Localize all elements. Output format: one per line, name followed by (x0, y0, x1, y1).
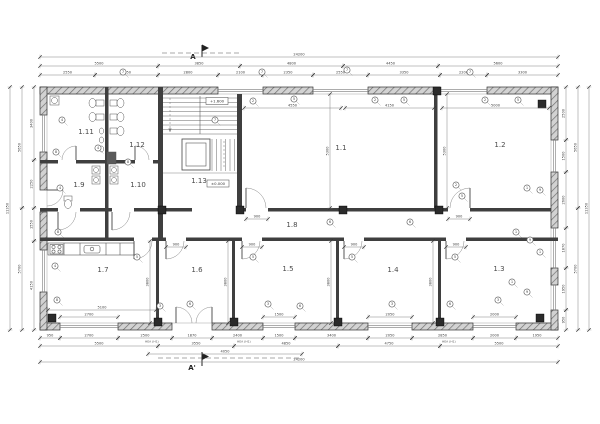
keynote-number: 5 (252, 255, 254, 259)
urinal (99, 128, 103, 134)
interior-walls (40, 87, 558, 323)
section-marker-top: A (162, 45, 242, 62)
toilet (89, 99, 96, 108)
keynote-number: 5 (517, 98, 519, 102)
dimension-text: 4150 (30, 281, 34, 290)
dimension-text: 2250 (30, 180, 34, 189)
keynote-leader (412, 224, 415, 227)
toilet (110, 128, 117, 134)
dimension-text: 3550 (192, 342, 201, 346)
keynote-leader (529, 190, 532, 193)
keynote-leader (64, 122, 67, 125)
toilet (117, 99, 124, 108)
keynote-number: 2 (455, 183, 457, 187)
keynote-number: 6 (409, 220, 411, 224)
dimension-text: 4450 (386, 62, 395, 66)
dimension-text: 5000 (491, 104, 500, 108)
room-label: 1.11 (78, 128, 94, 136)
dimension-text: 5650 (574, 143, 578, 152)
dimension-text: 3800 (146, 278, 150, 287)
keynote-number: 9 (539, 188, 541, 192)
dimension-text: 1550 (30, 220, 34, 229)
keynote-number: 7 (214, 118, 216, 122)
keynote-leader (264, 74, 267, 77)
dimension-text: 24200 (293, 53, 304, 57)
door-swing-arc (47, 190, 63, 206)
dimension-text: 2000 (490, 334, 499, 338)
dimension-text: 4050 (221, 350, 230, 354)
dimension-text: 1500 (275, 334, 284, 338)
room-label: 1.10 (130, 181, 146, 189)
door-swing-arc (62, 146, 76, 160)
dimension-subtext: HEA (H1) (145, 340, 159, 344)
dimension-text: 3300 (518, 71, 527, 75)
keynote-leader (520, 102, 523, 105)
dimension-text: 2800 (184, 71, 193, 75)
keynote-number: 1 (515, 230, 517, 234)
dimension-text: 4550 (288, 104, 297, 108)
keynote-number: 9 (529, 238, 531, 242)
sanitary-fixtures (50, 96, 124, 209)
keynote-leader (354, 259, 357, 262)
keynote-leader (192, 306, 195, 309)
keynote-number: 5 (461, 194, 463, 198)
keynote-number: 4 (54, 264, 56, 268)
dimension-text: 11350 (6, 203, 10, 214)
room-label: 1.12 (129, 141, 145, 149)
keynote-number: 8 (127, 160, 129, 164)
keynote-leader (529, 294, 532, 297)
dimension-text: 4150 (385, 104, 394, 108)
toilet (65, 200, 72, 209)
keynote-number: 7 (469, 70, 471, 74)
keynote-leader (472, 74, 475, 77)
dimension-text: 2850 (438, 334, 447, 338)
dimension-text: 11350 (585, 203, 589, 214)
keynote-number: 2 (374, 98, 376, 102)
keynote-number: 7 (122, 70, 124, 74)
dimension-text: 2000 (490, 313, 499, 317)
dimension-text: 2550 (336, 71, 345, 75)
dimension-text: 4850 (282, 342, 291, 346)
dimension-text: 1870 (188, 334, 197, 338)
dimension-text: 2500 (141, 334, 150, 338)
dimension-text: 5300 (326, 147, 330, 156)
keynote-number: 6 (329, 220, 331, 224)
level-value: ±0.000 (211, 181, 226, 186)
dimension-text: 2200 (459, 71, 468, 75)
dimension-text: 24200 (293, 358, 304, 362)
keynote-leader (58, 154, 61, 157)
keynote-number: 3 (267, 302, 269, 306)
dimension-text: 2700 (85, 313, 94, 317)
keynote-number: 1 (539, 250, 541, 254)
dimension-text: 3800 (327, 278, 331, 287)
keynote-leader (57, 268, 60, 271)
keynote-leader (270, 306, 273, 309)
keynote-leader (542, 254, 545, 257)
dimension-text: 900 (249, 243, 256, 247)
toilet (110, 114, 117, 120)
dimension-text: 4800 (287, 62, 296, 66)
toilet (96, 100, 104, 106)
keynote-leader (255, 103, 258, 106)
dimension-subtext: HEA (H1) (237, 340, 251, 344)
dimension-text: 2050 (386, 313, 395, 317)
door-swing-arc (58, 212, 76, 230)
urinal (99, 137, 103, 143)
door-swing-arc (246, 188, 266, 208)
dimension-text: 900 (173, 243, 180, 247)
keynote-leader (302, 308, 305, 311)
door-swing-arc (196, 307, 212, 323)
dimension-text: 900 (351, 243, 358, 247)
dimension-text: 900 (456, 215, 463, 219)
level-marker-ground: ±0.000 (207, 180, 229, 187)
dimension-text: 1870 (562, 244, 566, 253)
keynote-number: 5 (136, 255, 138, 259)
keynote-number: 8 (56, 298, 58, 302)
room-label: 1.6 (191, 266, 203, 274)
keynote-leader (514, 284, 517, 287)
dimension-text: 2700 (85, 334, 94, 338)
dimension-text: 5500 (495, 342, 504, 346)
keynote-number: 6 (449, 302, 451, 306)
keynote-number: 5 (351, 255, 353, 259)
keynote-leader (332, 224, 335, 227)
keynote-number: 6 (299, 304, 301, 308)
dimension-text: 1950 (533, 334, 542, 338)
keynote-number: 1 (526, 186, 528, 190)
dimension-text: 5700 (18, 265, 22, 274)
keynote-leader (518, 234, 521, 237)
door-swing-arc (112, 212, 130, 230)
level-marker-upper: +1.600 (206, 98, 228, 105)
section-flag-icon (202, 45, 209, 52)
keynote-number: 6 (189, 302, 191, 306)
floor-plan-canvas: A A' +1.600 ±0.000 242005500385048004450… (0, 0, 600, 424)
room-label: 1.7 (97, 266, 108, 274)
keynote-number: 3 (497, 298, 499, 302)
keynote-leader (162, 308, 165, 311)
toilet (110, 100, 117, 106)
dimension-text: 2350 (284, 71, 293, 75)
dimension-text: 2600 (562, 196, 566, 205)
keynote-leader (464, 198, 467, 201)
keynote-number: 1 (511, 280, 513, 284)
keynote-number: 5 (454, 255, 456, 259)
dimension-text: 5500 (95, 62, 104, 66)
columns (48, 87, 546, 326)
dimension-text: 5100 (98, 306, 107, 310)
room-label: 1.5 (282, 265, 293, 273)
keynote-leader (60, 234, 63, 237)
keynote-leader (487, 102, 490, 105)
dimension-text: 4750 (385, 342, 394, 346)
dimension-text: 3400 (327, 334, 336, 338)
dimension-text: 900 (453, 243, 460, 247)
dimension-text: 3800 (224, 278, 228, 287)
keynote-leader (458, 187, 461, 190)
dimension-subtext: HEA (H1) (442, 340, 456, 344)
room-label: 1.1 (335, 144, 346, 152)
keynote-leader (457, 259, 460, 262)
level-value: +1.600 (210, 99, 225, 104)
dimension-text: 2050 (386, 334, 395, 338)
room-label: 1.3 (493, 265, 504, 273)
room-label: 1.8 (286, 221, 297, 229)
keynote-leader (452, 306, 455, 309)
keynote-leader (542, 192, 545, 195)
keynote-number: 5 (293, 97, 295, 101)
keynote-leader (532, 242, 535, 245)
dimension-text: 5650 (18, 143, 22, 152)
stair-direction-arrow (168, 129, 171, 133)
keynote-number: 9 (526, 290, 528, 294)
dimension-text: 950 (562, 317, 566, 324)
room-label: 1.2 (494, 141, 505, 149)
keynote-number: 8 (55, 150, 57, 154)
dimension-text: 5300 (443, 147, 447, 156)
keynote-leader (255, 259, 258, 262)
dimension-text: 900 (254, 215, 261, 219)
keynote-number: 5 (403, 98, 405, 102)
room-label: 1.13 (191, 177, 207, 185)
dimension-text: 3800 (429, 278, 433, 287)
section-label-a-prime: A' (188, 364, 196, 372)
toilet (89, 113, 96, 122)
dimension-text: 1500 (275, 313, 284, 317)
room-label: 1.9 (73, 181, 84, 189)
toilet (117, 113, 124, 122)
keynote-leader (130, 164, 133, 167)
keynote-number: 4 (59, 186, 61, 190)
dimension-text: 5600 (494, 62, 503, 66)
keynote-number: 7 (346, 68, 348, 72)
keynote-number: 3 (391, 302, 393, 306)
drawing-sheet: A A' +1.600 ±0.000 242005500385048004450… (0, 0, 600, 424)
keynote-number: 2 (484, 98, 486, 102)
keynote-leader (59, 302, 62, 305)
keynote-number: 3 (159, 304, 161, 308)
dimension-text: 3350 (400, 71, 409, 75)
keynote-leader (406, 102, 409, 105)
dimension-text: 2100 (236, 71, 245, 75)
dimension-text: 950 (47, 334, 54, 338)
keynote-number: 4 (61, 118, 63, 122)
dimension-text: 2550 (63, 71, 72, 75)
keynote-leader (500, 302, 503, 305)
staircase (163, 96, 237, 173)
dimension-text: 2400 (233, 334, 242, 338)
keynote-number: 7 (261, 70, 263, 74)
dimension-text: 5500 (95, 342, 104, 346)
keynote-leader (377, 102, 380, 105)
duct-shaft (107, 152, 116, 164)
dimension-text: 5700 (574, 265, 578, 274)
keynote-number: 4 (97, 146, 99, 150)
keynote-bubbles: 2525257777363636348484819191915555664872… (52, 67, 546, 312)
dimension-text: 3400 (30, 119, 34, 128)
door-swing-arc (176, 307, 192, 323)
dimension-text: 1500 (562, 152, 566, 161)
kitchen-counter (48, 243, 134, 255)
dimension-text: 2500 (562, 109, 566, 118)
room-label: 1.4 (387, 266, 399, 274)
toilet (117, 127, 124, 136)
dimension-text: 1950 (562, 285, 566, 294)
keynote-number: 2 (252, 99, 254, 103)
keynote-leader (139, 259, 142, 262)
keynote-leader (394, 306, 397, 309)
dimension-text: 3850 (195, 62, 204, 66)
toilet (96, 114, 104, 120)
keynote-number: 8 (57, 230, 59, 234)
